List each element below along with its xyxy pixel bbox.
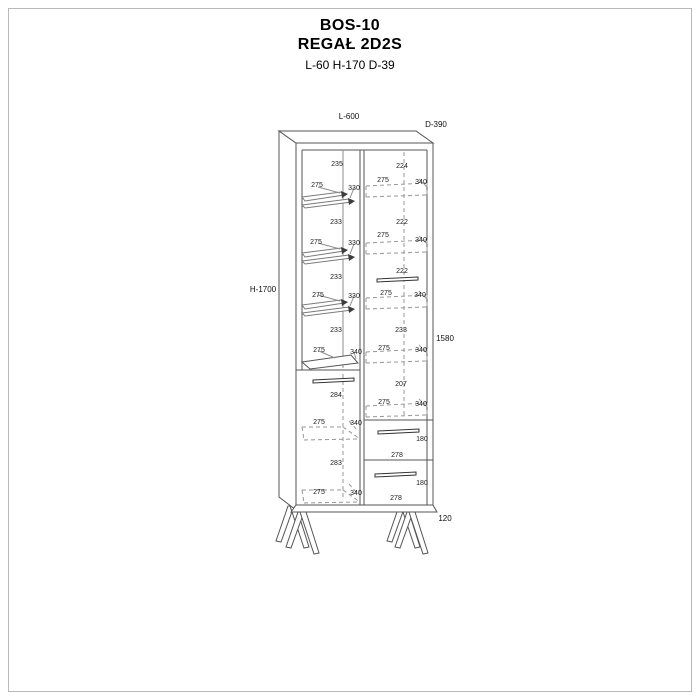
dim-label-overall-depth: D-390: [425, 120, 447, 129]
dim-label-leg-height: 120: [438, 514, 452, 523]
dim-label: 275: [377, 232, 389, 239]
cabinet-top-face: [279, 131, 433, 143]
dim-label: 233: [330, 219, 342, 226]
cabinet-bottom-edge: [291, 505, 437, 512]
dim-label: 340: [350, 420, 362, 427]
dim-label: 275: [313, 419, 325, 426]
dim-label: 340: [415, 401, 427, 408]
dim-label: 284: [330, 392, 342, 399]
dim-label: 340: [415, 347, 427, 354]
dim-label: 278: [390, 495, 402, 502]
dim-label: 283: [330, 460, 342, 467]
dim-label: 330: [348, 240, 360, 247]
dim-label: 278: [391, 452, 403, 459]
dim-label: 275: [312, 292, 324, 299]
cabinet-diagram: L-600D-390H-17001580120 2352753302332753…: [0, 0, 700, 700]
dim-label: 340: [414, 292, 426, 299]
dim-label: 330: [348, 293, 360, 300]
dim-label: 275: [313, 489, 325, 496]
cabinet-left-side: [279, 131, 296, 510]
dim-label: 207: [395, 381, 407, 388]
dim-label: 275: [310, 239, 322, 246]
dim-label: 233: [330, 274, 342, 281]
dim-label: 275: [380, 290, 392, 297]
dim-label: 233: [395, 327, 407, 334]
dim-label: 275: [378, 399, 390, 406]
legs: [276, 506, 428, 554]
dim-label-overall-height: H-1700: [250, 285, 277, 294]
dim-label: 340: [350, 490, 362, 497]
dim-label: 224: [396, 163, 408, 170]
dim-label: 330: [348, 185, 360, 192]
dim-label: 275: [311, 182, 323, 189]
dim-label: 340: [415, 237, 427, 244]
dim-label: 233: [330, 327, 342, 334]
dim-label-body-height: 1580: [436, 334, 454, 343]
dim-label: 180: [416, 436, 428, 443]
dim-label: 180: [416, 480, 428, 487]
dim-label: 235: [331, 161, 343, 168]
dim-label-overall-length: L-600: [339, 112, 360, 121]
dim-label: 340: [350, 349, 362, 356]
technical-drawing-page: BOS-10 REGAŁ 2D2S L-60 H-170 D-39: [0, 0, 700, 700]
dim-label: 275: [313, 347, 325, 354]
dim-label: 222: [396, 219, 408, 226]
dim-label: 275: [378, 345, 390, 352]
dim-label: 340: [415, 179, 427, 186]
dim-label: 222: [396, 268, 408, 275]
dim-label: 275: [377, 177, 389, 184]
